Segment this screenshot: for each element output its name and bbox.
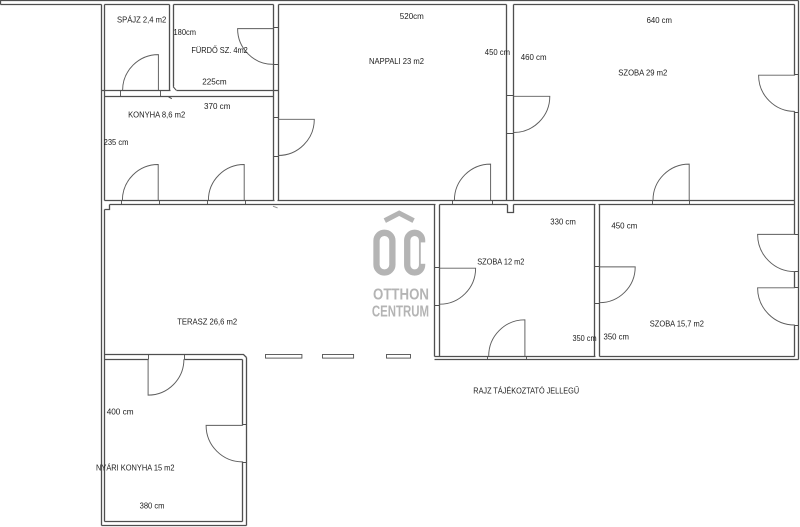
svg-text:OTTHON: OTTHON [373, 287, 429, 304]
svg-text:520cm: 520cm [400, 11, 424, 21]
svg-text:TERASZ 26,6 m2: TERASZ 26,6 m2 [177, 317, 237, 327]
svg-text:450 cm: 450 cm [611, 221, 637, 231]
svg-text:SZOBA 15,7 m2: SZOBA 15,7 m2 [650, 318, 704, 328]
svg-text:KONYHA 8,6 m2: KONYHA 8,6 m2 [128, 110, 185, 120]
svg-text:640 cm: 640 cm [647, 15, 672, 25]
svg-text:SZOBA 12 m2: SZOBA 12 m2 [477, 256, 524, 266]
svg-text:SZOBA 29 m2: SZOBA 29 m2 [618, 68, 667, 78]
svg-text:225cm: 225cm [202, 76, 226, 86]
svg-text:180cm: 180cm [174, 27, 197, 37]
svg-text:FÜRDŐ SZ. 4m2: FÜRDŐ SZ. 4m2 [191, 45, 248, 55]
svg-text:350 cm: 350 cm [573, 333, 597, 343]
svg-text:370 cm: 370 cm [204, 101, 230, 111]
svg-text:400 cm: 400 cm [107, 406, 134, 416]
svg-text:460 cm: 460 cm [521, 52, 547, 62]
svg-text:380 cm: 380 cm [140, 500, 165, 510]
svg-text:RAJZ TÁJÉKOZTATÓ JELLEGŰ: RAJZ TÁJÉKOZTATÓ JELLEGŰ [473, 386, 579, 396]
svg-text:450 cm: 450 cm [485, 47, 510, 57]
svg-text:350 cm: 350 cm [604, 332, 630, 342]
svg-text:235 cm: 235 cm [104, 137, 129, 147]
svg-text:NYÁRI KONYHA 15 m2: NYÁRI KONYHA 15 m2 [96, 463, 175, 473]
svg-text:SPÁJZ 2,4 m2: SPÁJZ 2,4 m2 [117, 15, 167, 25]
svg-text:NAPPALI 23 m2: NAPPALI 23 m2 [369, 56, 424, 66]
svg-text:CENTRUM: CENTRUM [372, 304, 429, 321]
svg-text:330 cm: 330 cm [550, 217, 576, 227]
